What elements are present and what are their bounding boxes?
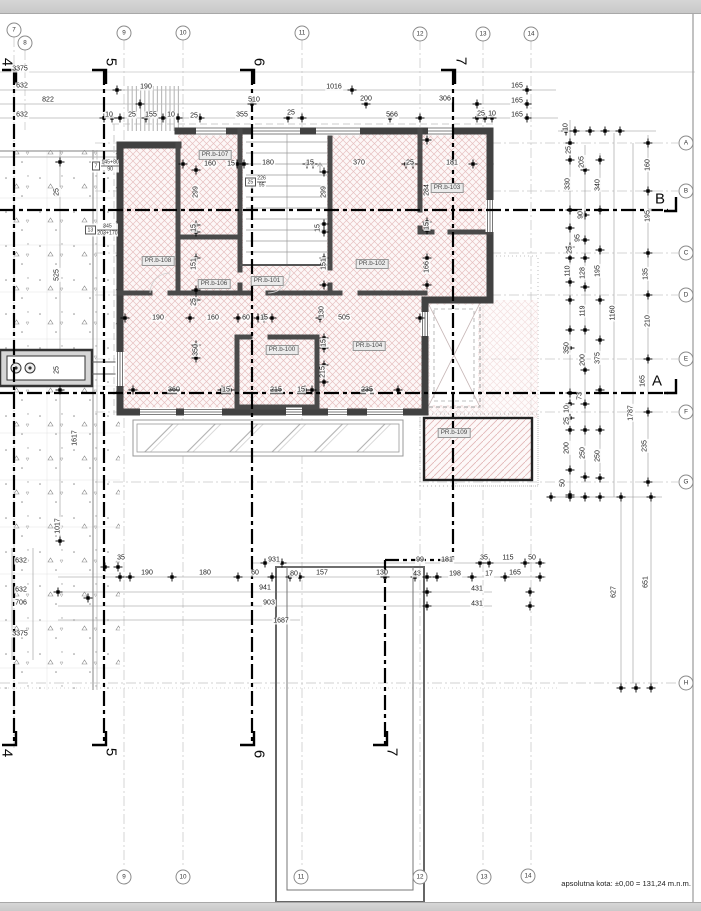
plan-drawing bbox=[0, 0, 701, 911]
absolute-elevation-note: apsolutna kota: ±0,00 = 131,24 m.n.m. bbox=[561, 879, 691, 888]
floor-plan-canvas: 3375632822632190101651020030656616516516… bbox=[0, 0, 701, 911]
bottom-gray-bar bbox=[0, 902, 701, 911]
top-gray-bar bbox=[0, 0, 701, 14]
